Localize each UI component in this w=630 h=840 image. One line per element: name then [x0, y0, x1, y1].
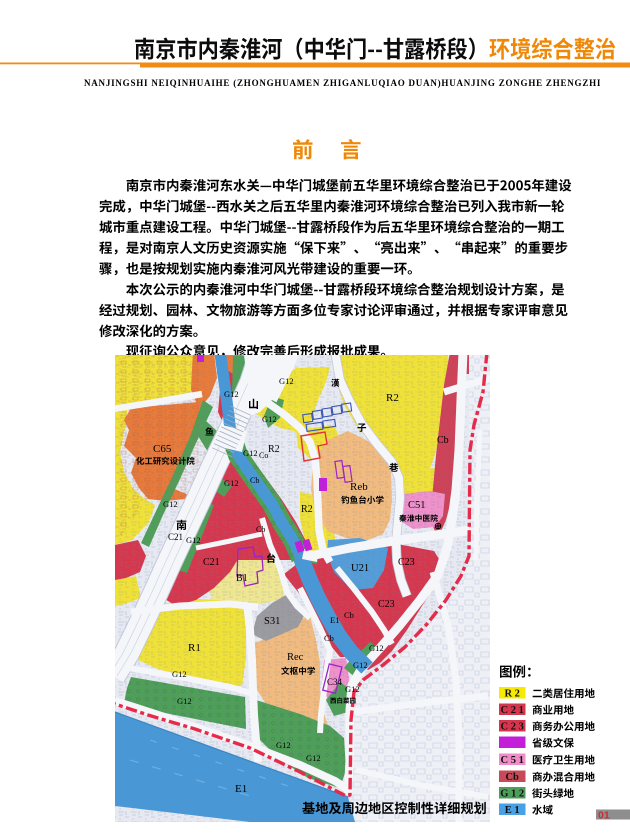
- svg-text:G 1 2: G 1 2: [500, 789, 524, 800]
- svg-text:Co: Co: [259, 451, 268, 460]
- svg-text:C34: C34: [327, 677, 343, 687]
- svg-text:B1: B1: [236, 573, 248, 584]
- svg-text:R2: R2: [268, 444, 280, 455]
- svg-text:R1: R1: [188, 642, 201, 654]
- svg-text:G12: G12: [306, 753, 321, 763]
- svg-text:G12: G12: [262, 414, 277, 424]
- svg-text:G12: G12: [224, 389, 239, 399]
- svg-text:G12: G12: [172, 669, 187, 679]
- svg-text:E1: E1: [235, 783, 247, 795]
- svg-text:01: 01: [598, 810, 610, 822]
- svg-text:Cb: Cb: [256, 525, 265, 534]
- svg-text:G12: G12: [224, 478, 239, 488]
- svg-text:C 2 3: C 2 3: [501, 722, 524, 733]
- svg-text:U21: U21: [351, 563, 369, 574]
- svg-text:R2: R2: [301, 504, 313, 515]
- svg-text:C23: C23: [378, 599, 395, 610]
- svg-text:Cb: Cb: [505, 772, 519, 783]
- svg-text:S31: S31: [264, 616, 280, 627]
- svg-text:G12: G12: [163, 499, 178, 509]
- svg-text:G12: G12: [243, 448, 258, 458]
- svg-text:C21: C21: [203, 557, 220, 568]
- svg-text:R 2: R 2: [504, 689, 519, 700]
- svg-text:NANJINGSHI NEIQINHUAIHE (ZHONG: NANJINGSHI NEIQINHUAIHE (ZHONGHUAMEN ZHI…: [84, 78, 601, 88]
- svg-text:G12: G12: [186, 535, 201, 545]
- svg-text:Cb: Cb: [437, 435, 449, 446]
- svg-text:Cb: Cb: [250, 476, 259, 485]
- svg-text:G12: G12: [177, 696, 192, 706]
- svg-text:G12: G12: [276, 740, 291, 750]
- svg-text:C23: C23: [398, 557, 415, 568]
- svg-text:G12: G12: [345, 684, 360, 694]
- svg-text:E1: E1: [330, 615, 339, 625]
- svg-text:C 5 1: C 5 1: [501, 755, 524, 766]
- svg-text:Reb: Reb: [350, 481, 368, 493]
- svg-text:Cb: Cb: [324, 633, 334, 643]
- svg-text:E 1: E 1: [505, 805, 520, 816]
- svg-text:G12: G12: [353, 660, 368, 670]
- svg-text:C21: C21: [168, 532, 183, 542]
- svg-text:C 2 1: C 2 1: [501, 705, 524, 716]
- svg-text:C65: C65: [153, 443, 172, 455]
- svg-text:G12: G12: [369, 643, 384, 653]
- svg-text:C51: C51: [408, 500, 426, 511]
- svg-text:R2: R2: [386, 392, 399, 404]
- svg-text:Rec: Rec: [287, 652, 304, 663]
- svg-text:Cb: Cb: [344, 610, 354, 620]
- svg-text:G12: G12: [279, 376, 294, 386]
